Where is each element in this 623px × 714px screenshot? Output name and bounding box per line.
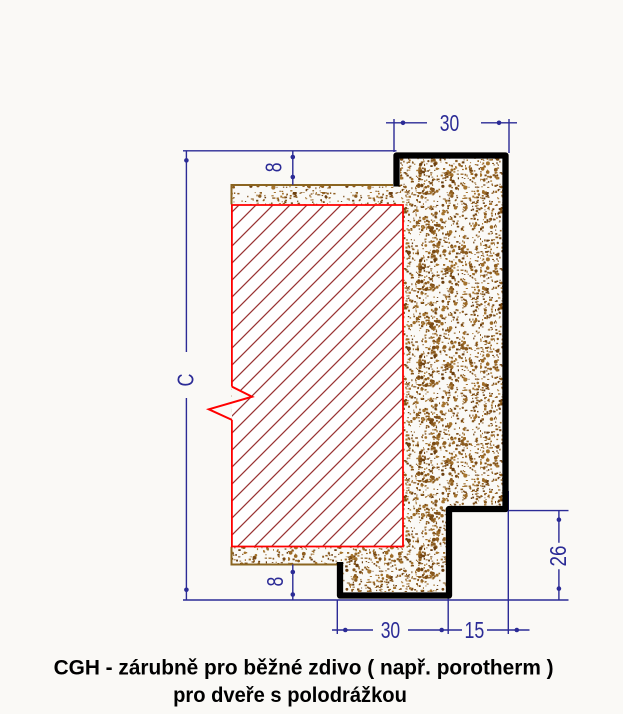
svg-text:8: 8 xyxy=(262,577,288,587)
svg-text:15: 15 xyxy=(465,617,485,643)
svg-text:30: 30 xyxy=(440,110,460,136)
svg-text:8: 8 xyxy=(261,162,287,172)
svg-text:pro dveře s polodrážkou: pro dveře s polodrážkou xyxy=(173,684,407,707)
svg-text:CGH - zárubně pro běžné zdivo: CGH - zárubně pro běžné zdivo ( např. po… xyxy=(54,656,554,679)
svg-text:26: 26 xyxy=(545,546,571,567)
svg-text:30: 30 xyxy=(381,617,401,643)
svg-text:C: C xyxy=(173,374,199,387)
